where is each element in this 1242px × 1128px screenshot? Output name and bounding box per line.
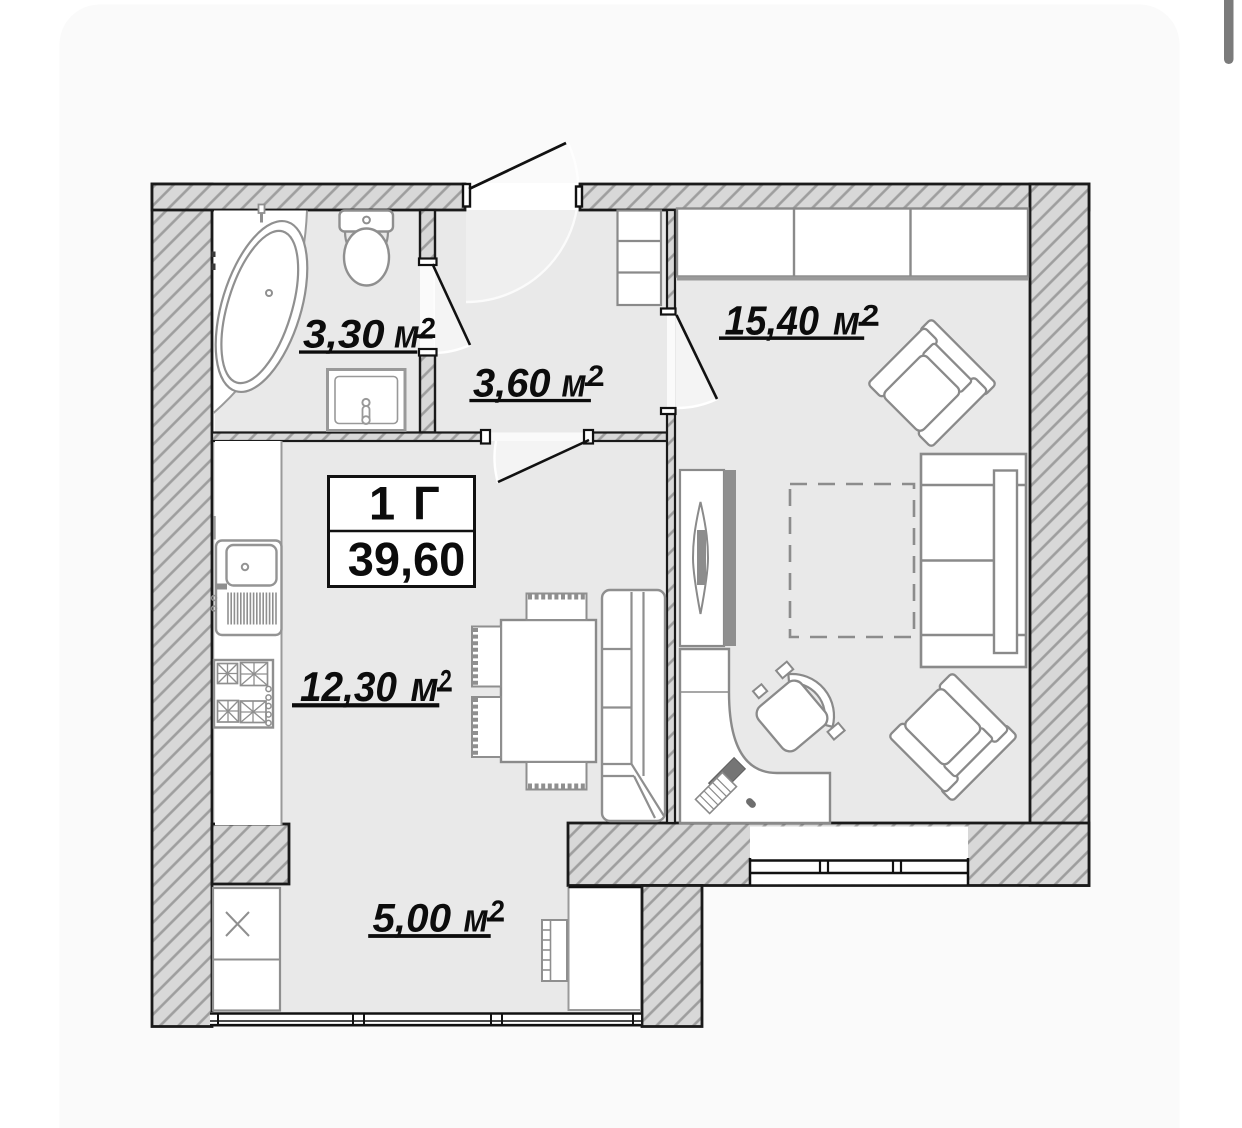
svg-text:м: м [411, 663, 439, 710]
svg-text:2: 2 [419, 312, 436, 345]
svg-text:3,30: 3,30 [303, 313, 385, 357]
svg-text:2: 2 [489, 895, 505, 928]
svg-text:5,00: 5,00 [373, 897, 452, 941]
svg-text:12,30: 12,30 [300, 663, 397, 710]
svg-text:2: 2 [860, 299, 878, 332]
svg-text:2: 2 [586, 360, 604, 393]
svg-text:3,60: 3,60 [473, 361, 551, 405]
svg-text:1: 1 [369, 477, 395, 530]
svg-text:м: м [464, 897, 489, 941]
svg-text:м: м [562, 361, 587, 405]
svg-text:Г: Г [413, 477, 440, 530]
svg-text:39,60: 39,60 [348, 533, 466, 586]
svg-text:2: 2 [438, 663, 451, 698]
